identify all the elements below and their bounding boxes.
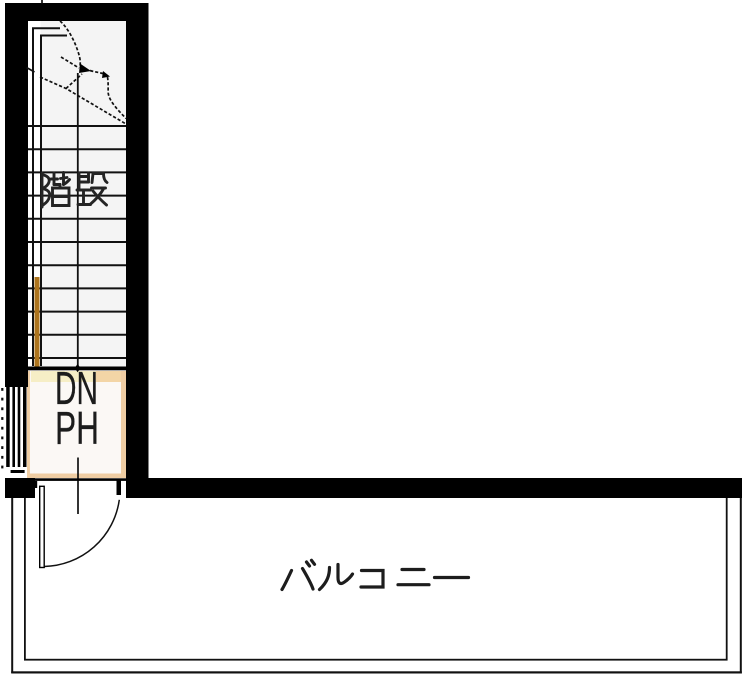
svg-text:PH: PH xyxy=(55,402,99,454)
